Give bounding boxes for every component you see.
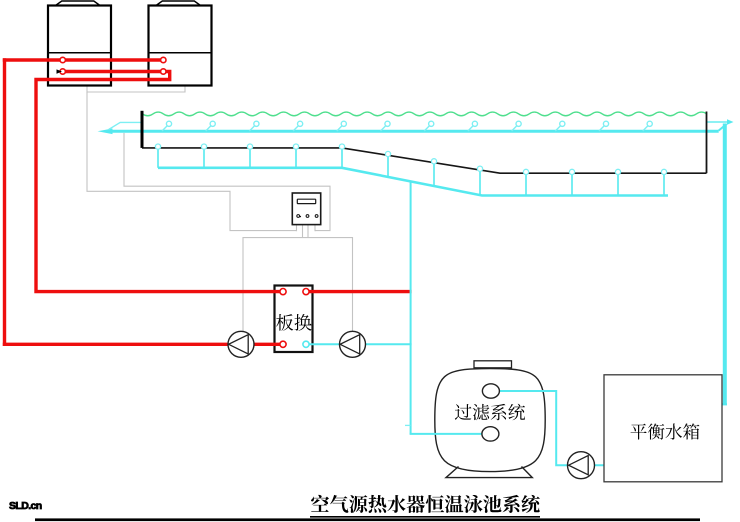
svg-text:SLD.cn: SLD.cn [9,500,42,512]
